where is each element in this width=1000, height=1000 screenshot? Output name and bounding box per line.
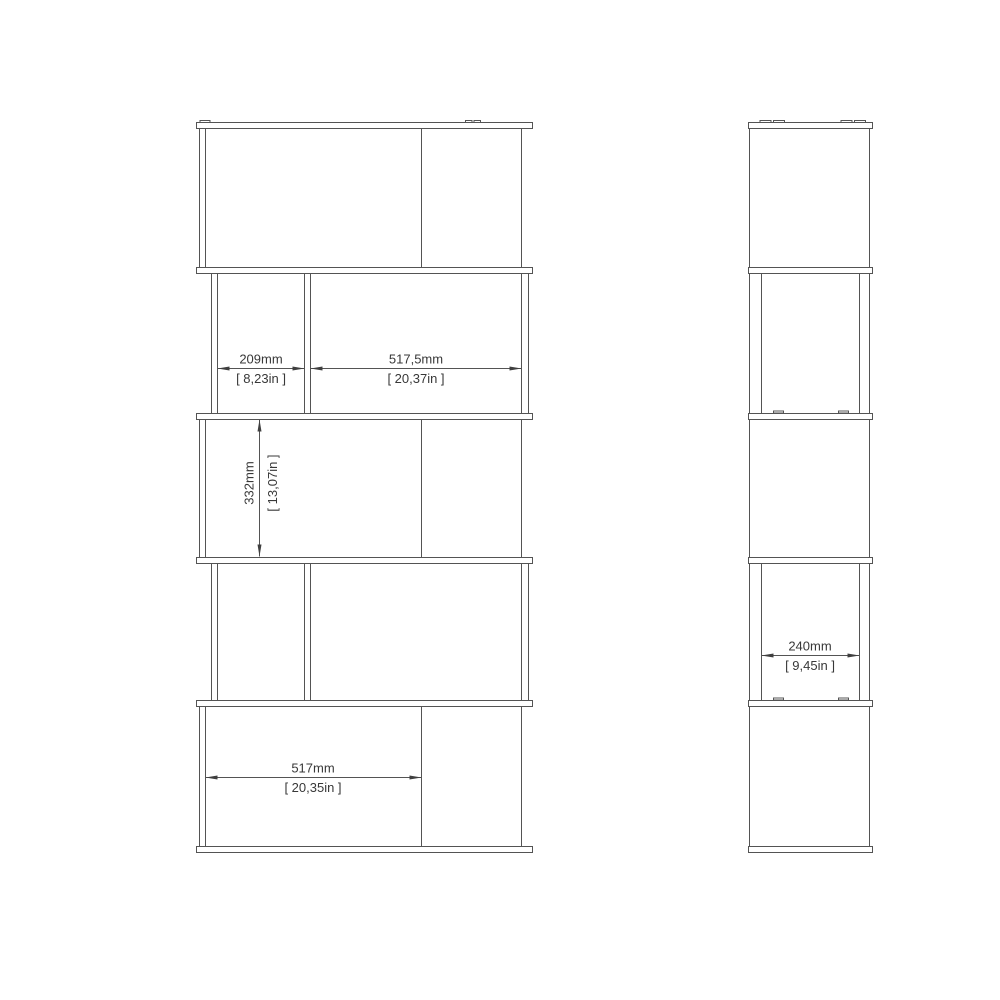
side-tier-2 bbox=[750, 274, 870, 414]
bookcase-technical-drawing: 209mm [ 8,23in ] 517,5mm [ 20,37in ] 332… bbox=[0, 0, 1000, 1000]
shelf-board bbox=[749, 701, 873, 707]
shelf-board bbox=[749, 847, 873, 853]
connector-mark bbox=[774, 411, 784, 413]
connector-mark bbox=[839, 411, 849, 413]
side-tier-5 bbox=[750, 707, 870, 847]
dimension-arrow bbox=[258, 545, 262, 557]
dimension-arrow bbox=[848, 654, 860, 658]
shelf-board bbox=[197, 414, 533, 420]
shelf-board bbox=[749, 414, 873, 420]
shelf-board bbox=[749, 268, 873, 274]
shelf-board bbox=[197, 558, 533, 564]
dimension-arrow bbox=[258, 420, 262, 432]
shelf-board bbox=[197, 123, 533, 129]
drawing-page: 209mm [ 8,23in ] 517,5mm [ 20,37in ] 332… bbox=[0, 0, 1000, 1000]
dimension-arrow bbox=[510, 367, 522, 371]
side-panel bbox=[200, 420, 206, 558]
side-tier-4 bbox=[750, 564, 870, 701]
tier-1 bbox=[200, 129, 522, 268]
dimension-label-inches: [ 9,45in ] bbox=[785, 658, 835, 673]
dimension-arrow bbox=[206, 776, 218, 780]
dimension-332mm: 332mm [ 13,07in ] bbox=[242, 420, 281, 557]
side-panel bbox=[522, 274, 529, 414]
dimension-label-mm: 517,5mm bbox=[389, 352, 443, 367]
dimension-arrow bbox=[762, 654, 774, 658]
dimension-arrow bbox=[311, 367, 323, 371]
front-view: 209mm [ 8,23in ] 517,5mm [ 20,37in ] 332… bbox=[197, 121, 533, 853]
dimension-label-mm: 332mm bbox=[242, 461, 257, 504]
shelf-board bbox=[197, 701, 533, 707]
dimension-label-mm: 240mm bbox=[788, 639, 831, 654]
shelf-board bbox=[749, 123, 873, 129]
side-panel bbox=[212, 274, 218, 414]
connector-mark bbox=[774, 698, 784, 700]
dimension-label-inches: [ 13,07in ] bbox=[265, 454, 280, 511]
dimension-label-mm: 209mm bbox=[239, 352, 282, 367]
side-panel bbox=[200, 707, 206, 847]
side-panel bbox=[200, 129, 206, 268]
shelf-board bbox=[749, 558, 873, 564]
side-panel bbox=[522, 564, 529, 701]
dimension-label-inches: [ 8,23in ] bbox=[236, 371, 286, 386]
dimension-517-5mm: 517,5mm [ 20,37in ] bbox=[311, 352, 522, 387]
connector-mark bbox=[839, 698, 849, 700]
divider-panel bbox=[305, 274, 311, 414]
tier-2 bbox=[212, 274, 529, 414]
shelf-board bbox=[197, 847, 533, 853]
dimension-label-mm: 517mm bbox=[291, 761, 334, 776]
tier-5 bbox=[200, 707, 522, 847]
dimension-arrow bbox=[293, 367, 305, 371]
shelf-board bbox=[197, 268, 533, 274]
side-tier-1 bbox=[750, 129, 870, 268]
dimension-arrow bbox=[218, 367, 230, 371]
dimension-240mm: 240mm [ 9,45in ] bbox=[762, 639, 860, 674]
dimension-517mm: 517mm [ 20,35in ] bbox=[206, 761, 422, 796]
divider-panel bbox=[305, 564, 311, 701]
dimension-209mm: 209mm [ 8,23in ] bbox=[218, 352, 305, 387]
side-tier-3 bbox=[750, 420, 870, 558]
tier-4 bbox=[212, 564, 529, 701]
dimension-arrow bbox=[410, 776, 422, 780]
dimension-label-inches: [ 20,35in ] bbox=[284, 780, 341, 795]
side-view: 240mm [ 9,45in ] bbox=[749, 121, 873, 853]
dimension-label-inches: [ 20,37in ] bbox=[387, 371, 444, 386]
side-panel bbox=[212, 564, 218, 701]
